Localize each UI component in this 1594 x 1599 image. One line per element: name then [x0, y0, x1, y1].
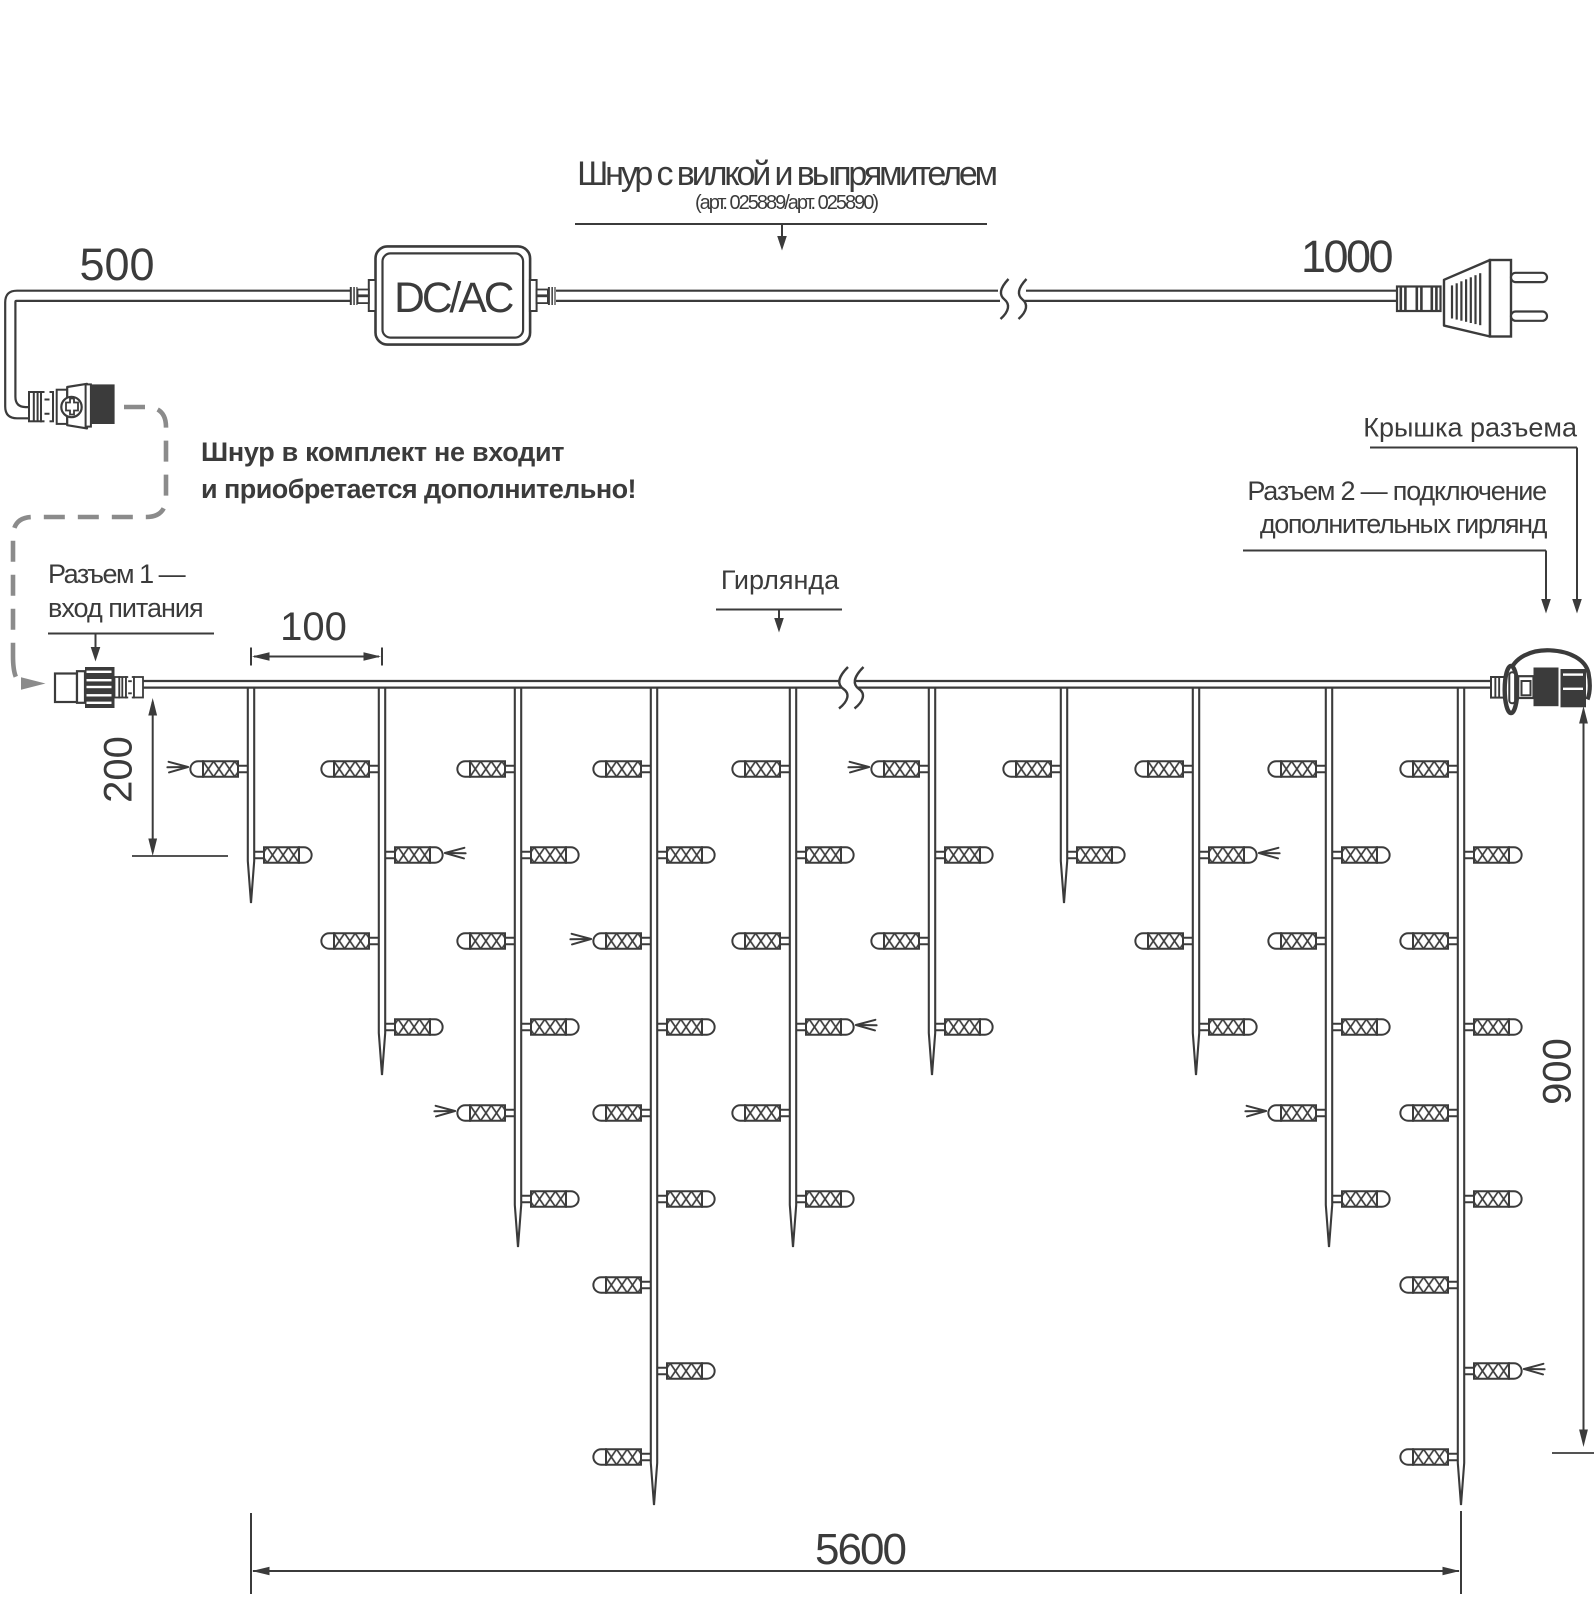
- svg-text:Крышка разъема: Крышка разъема: [1363, 413, 1578, 443]
- svg-text:Разъем 2 — подключение: Разъем 2 — подключение: [1247, 476, 1546, 506]
- svg-text:Разъем 1 —: Разъем 1 —: [48, 559, 186, 589]
- svg-text:1000: 1000: [1301, 231, 1393, 282]
- svg-text:и приобретается дополнительно!: и приобретается дополнительно!: [201, 474, 636, 504]
- svg-text:Шнур в комплект не входит: Шнур в комплект не входит: [201, 437, 564, 467]
- svg-text:Шнур с вилкой и выпрямителем: Шнур с вилкой и выпрямителем: [577, 155, 997, 193]
- svg-text:500: 500: [79, 239, 154, 290]
- svg-text:DC/AC: DC/AC: [394, 275, 514, 322]
- svg-text:5600: 5600: [815, 1525, 905, 1574]
- svg-text:200: 200: [97, 736, 141, 803]
- svg-text:100: 100: [280, 605, 347, 649]
- svg-text:Гирлянда: Гирлянда: [721, 565, 840, 595]
- svg-text:900: 900: [1536, 1038, 1580, 1105]
- svg-text:(арт. 025889/арт. 025890): (арт. 025889/арт. 025890): [695, 192, 878, 214]
- svg-text:вход питания: вход питания: [48, 593, 203, 623]
- svg-text:дополнительных гирлянд: дополнительных гирлянд: [1260, 509, 1548, 539]
